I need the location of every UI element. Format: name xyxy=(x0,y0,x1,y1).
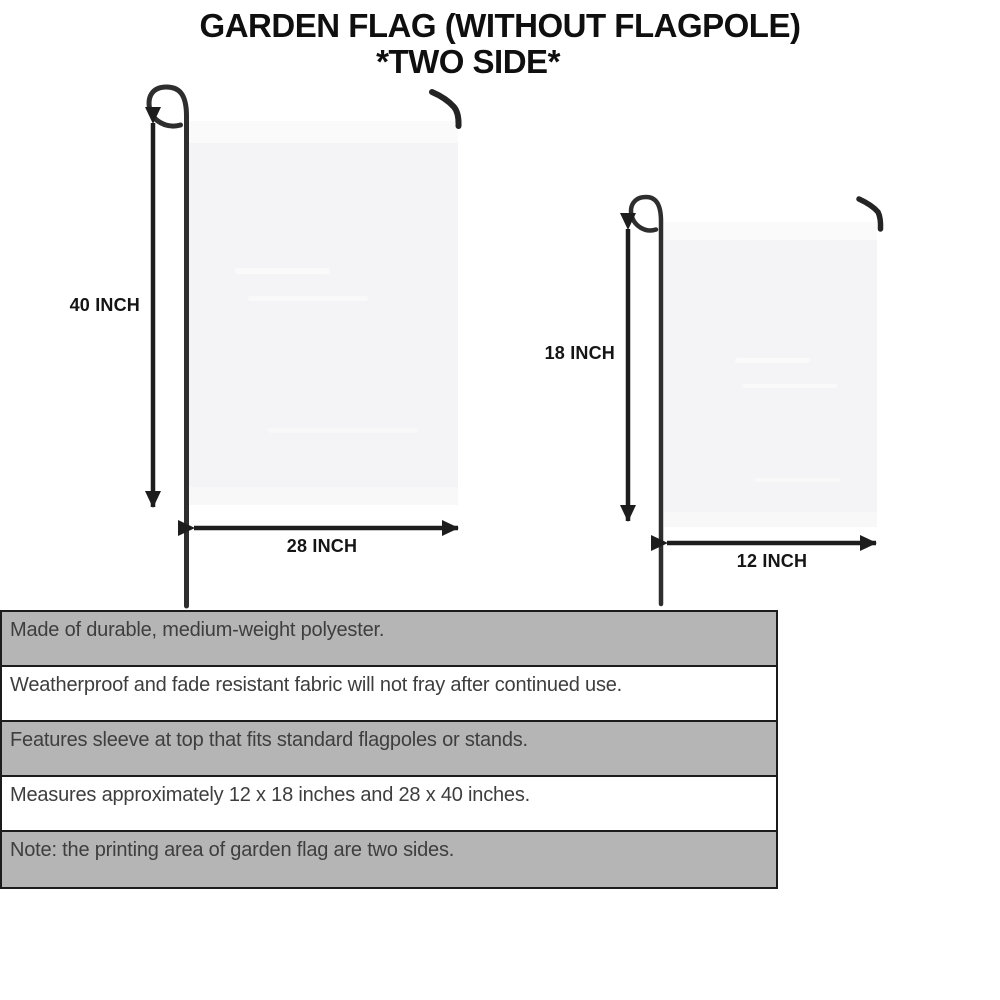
small-flag-crease xyxy=(735,358,810,363)
large-flag-crease xyxy=(248,296,368,301)
feature-row-material: Made of durable, medium-weight polyester… xyxy=(2,612,776,667)
large-flag-panel xyxy=(189,121,458,505)
large-flag-bottom-hem xyxy=(189,487,458,505)
large-flag-hanger-hook xyxy=(432,92,459,126)
large-flag-width-label: 28 INCH xyxy=(252,536,392,557)
large-flag-crease xyxy=(268,428,418,433)
feature-row-measures: Measures approximately 12 x 18 inches an… xyxy=(2,777,776,832)
feature-row-weatherproof: Weatherproof and fade resistant fabric w… xyxy=(2,667,776,722)
small-flag xyxy=(628,197,881,604)
small-flag-sleeve xyxy=(664,222,877,240)
small-flag-height-label: 18 INCH xyxy=(505,343,615,364)
large-flag-crease xyxy=(235,268,330,274)
feature-row-note: Note: the printing area of garden flag a… xyxy=(2,832,776,887)
feature-row-sleeve: Features sleeve at top that fits standar… xyxy=(2,722,776,777)
large-flag xyxy=(149,87,458,606)
small-flag-bottom-hem xyxy=(664,512,877,527)
features-table: Made of durable, medium-weight polyester… xyxy=(0,610,778,889)
small-flag-crease xyxy=(742,384,837,388)
small-flag-crease xyxy=(755,478,840,482)
small-flag-pole xyxy=(631,197,661,604)
garden-flag-infographic: GARDEN FLAG (WITHOUT FLAGPOLE) *TWO SIDE… xyxy=(0,0,1000,1000)
large-flag-height-label: 40 INCH xyxy=(30,295,140,316)
large-flag-sleeve xyxy=(189,121,458,143)
small-flag-width-label: 12 INCH xyxy=(702,551,842,572)
